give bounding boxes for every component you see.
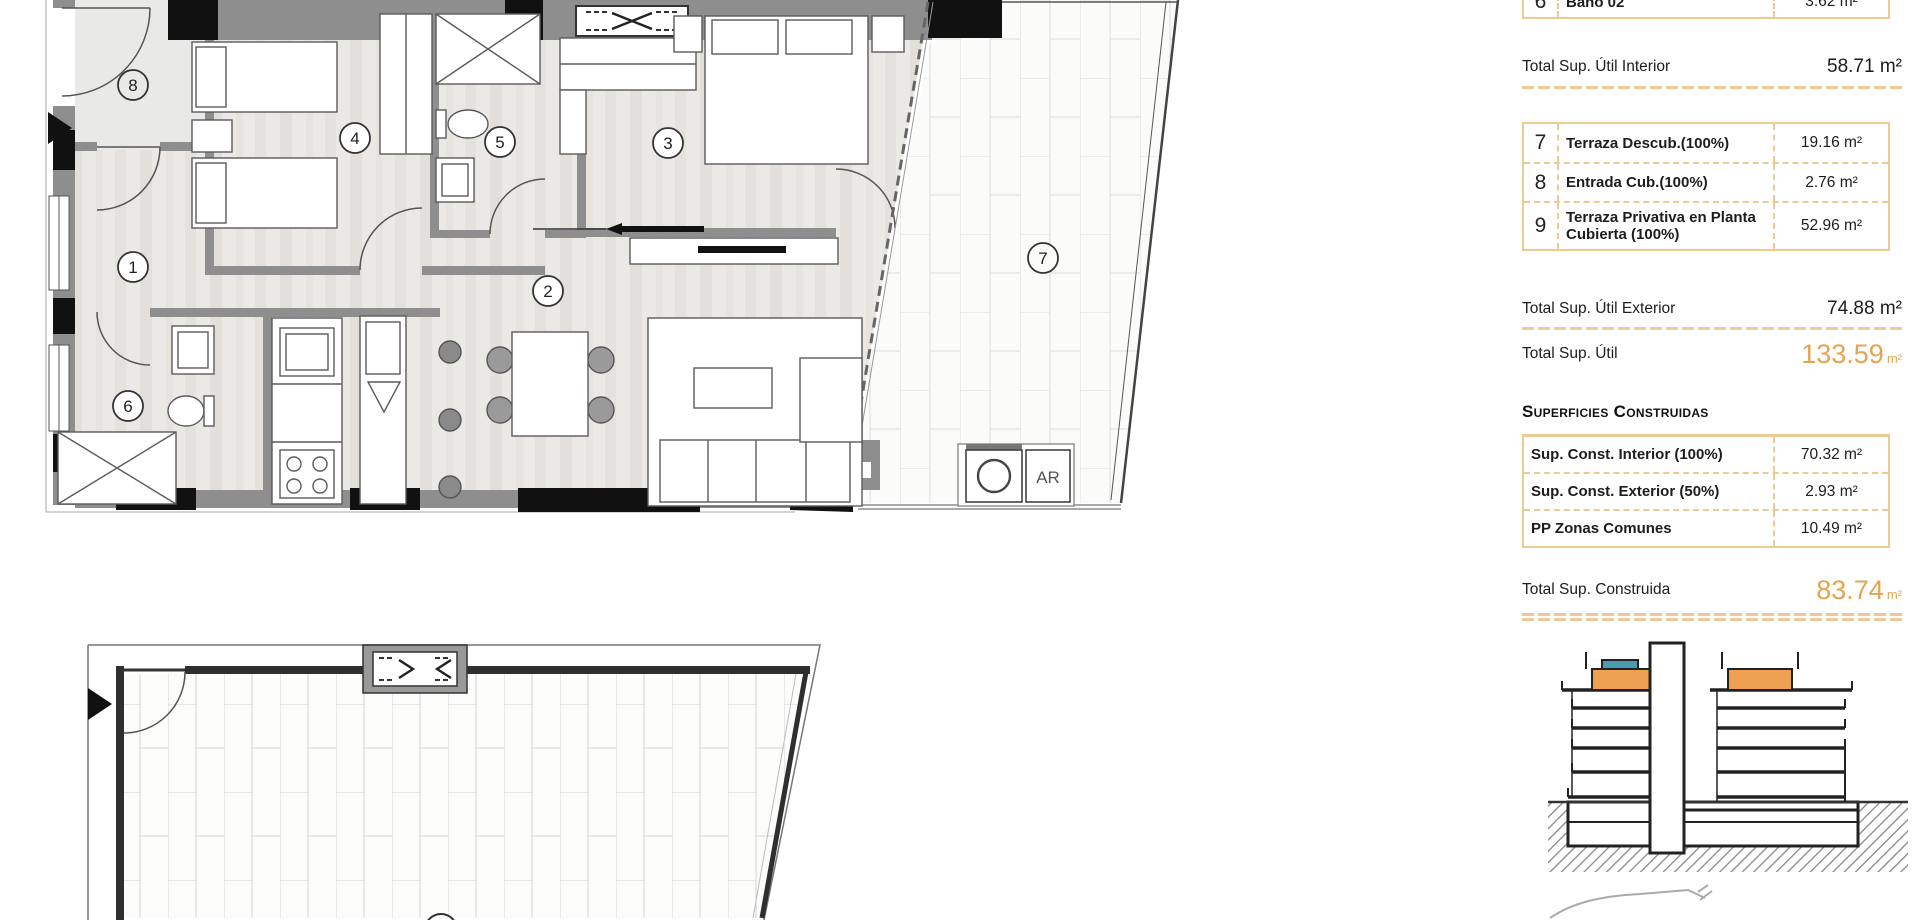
row-value: 19.16 m² bbox=[1773, 124, 1888, 162]
kitchen bbox=[272, 316, 406, 504]
total-value: 74.88 m² bbox=[1827, 298, 1902, 320]
row-number: 8 bbox=[1524, 164, 1559, 201]
total-util: Total Sup. Útil 133.59m² bbox=[1522, 336, 1902, 372]
sofa bbox=[648, 318, 862, 506]
section-arrow-icon bbox=[88, 688, 112, 720]
wall-post-hole bbox=[862, 462, 871, 478]
total-value: 83.74m² bbox=[1816, 575, 1902, 606]
shaft-box bbox=[576, 6, 688, 36]
roof-shaft-box bbox=[363, 645, 467, 693]
room-number-5: 5 bbox=[495, 133, 504, 152]
ar-label: AR bbox=[1036, 468, 1060, 487]
row-label: PP Zonas Comunes bbox=[1524, 511, 1773, 546]
row-label: Terraza Privativa en Planta Cubierta (10… bbox=[1559, 203, 1773, 249]
room-number-3: 3 bbox=[663, 134, 672, 153]
row-label: Terraza Descub.(100%) bbox=[1559, 124, 1773, 162]
row-number: 9 bbox=[1524, 203, 1559, 249]
right-penthouse bbox=[1728, 669, 1792, 690]
total-value: 58.71 m² bbox=[1827, 56, 1902, 78]
room-number-8: 8 bbox=[128, 76, 137, 95]
row-value: 2.76 m² bbox=[1773, 164, 1888, 201]
total-value: 133.59m² bbox=[1801, 339, 1902, 370]
row-bano02-partial: 6 Baño 02 3.62 m² bbox=[1522, 0, 1890, 19]
row-number: 6 bbox=[1524, 0, 1559, 17]
row-label: Sup. Const. Exterior (50%) bbox=[1524, 474, 1773, 509]
row-number: 7 bbox=[1524, 124, 1559, 162]
total-label: Total Sup. Construida bbox=[1522, 581, 1670, 599]
row-label: Sup. Const. Interior (100%) bbox=[1524, 437, 1773, 472]
room-number-7: 7 bbox=[1038, 249, 1047, 268]
roof-terrace-plan: 9 bbox=[40, 628, 860, 920]
total-util-exterior: Total Sup. Útil Exterior 74.88 m² bbox=[1522, 292, 1902, 326]
construidas-table: Sup. Const. Interior (100%) 70.32 m² Sup… bbox=[1522, 434, 1890, 548]
main-floor-plan: AR 1 2 3 4 5 6 7 8 bbox=[0, 0, 1220, 525]
divider-rule bbox=[1522, 86, 1902, 89]
table-row: 8 Entrada Cub.(100%) 2.76 m² bbox=[1524, 162, 1888, 201]
total-label: Total Sup. Útil bbox=[1522, 345, 1618, 363]
room-number-1: 1 bbox=[128, 258, 137, 277]
core-shaft bbox=[1650, 643, 1684, 853]
pool bbox=[1602, 660, 1638, 669]
table-row: Sup. Const. Interior (100%) 70.32 m² bbox=[1524, 437, 1888, 472]
total-util-interior: Total Sup. Útil Interior 58.71 m² bbox=[1522, 50, 1902, 84]
divider-rule bbox=[1522, 618, 1902, 621]
row-label: Entrada Cub.(100%) bbox=[1559, 164, 1773, 201]
total-label: Total Sup. Útil Interior bbox=[1522, 58, 1670, 76]
construidas-header: Superficies Construidas bbox=[1522, 402, 1709, 422]
row-value: 2.93 m² bbox=[1773, 474, 1888, 509]
table-row: Sup. Const. Exterior (50%) 2.93 m² bbox=[1524, 472, 1888, 509]
table-row: PP Zonas Comunes 10.49 m² bbox=[1524, 509, 1888, 546]
exterior-surfaces-table: 7 Terraza Descub.(100%) 19.16 m² 8 Entra… bbox=[1522, 122, 1890, 251]
room-number-4: 4 bbox=[350, 129, 359, 148]
table-row: 7 Terraza Descub.(100%) 19.16 m² bbox=[1524, 124, 1888, 162]
row-value: 52.96 m² bbox=[1773, 203, 1888, 249]
divider-rule bbox=[1522, 613, 1902, 616]
total-label: Total Sup. Útil Exterior bbox=[1522, 300, 1675, 318]
row-label: Baño 02 bbox=[1559, 0, 1773, 17]
roof-tiles bbox=[124, 674, 806, 918]
table-row: 9 Terraza Privativa en Planta Cubierta (… bbox=[1524, 201, 1888, 249]
laundry-closet: AR bbox=[958, 444, 1074, 506]
room-number-6: 6 bbox=[123, 397, 132, 416]
site-plan-fragment bbox=[1550, 885, 1712, 918]
total-construida: Total Sup. Construida 83.74m² bbox=[1522, 572, 1902, 608]
room-number-2: 2 bbox=[543, 282, 552, 301]
building-section-diagram bbox=[1530, 628, 1920, 920]
divider-rule bbox=[1522, 327, 1902, 330]
row-value: 70.32 m² bbox=[1773, 437, 1888, 472]
row-value: 10.49 m² bbox=[1773, 511, 1888, 546]
left-penthouse bbox=[1592, 669, 1650, 690]
row-value: 3.62 m² bbox=[1773, 0, 1888, 17]
tv-console bbox=[630, 238, 838, 264]
